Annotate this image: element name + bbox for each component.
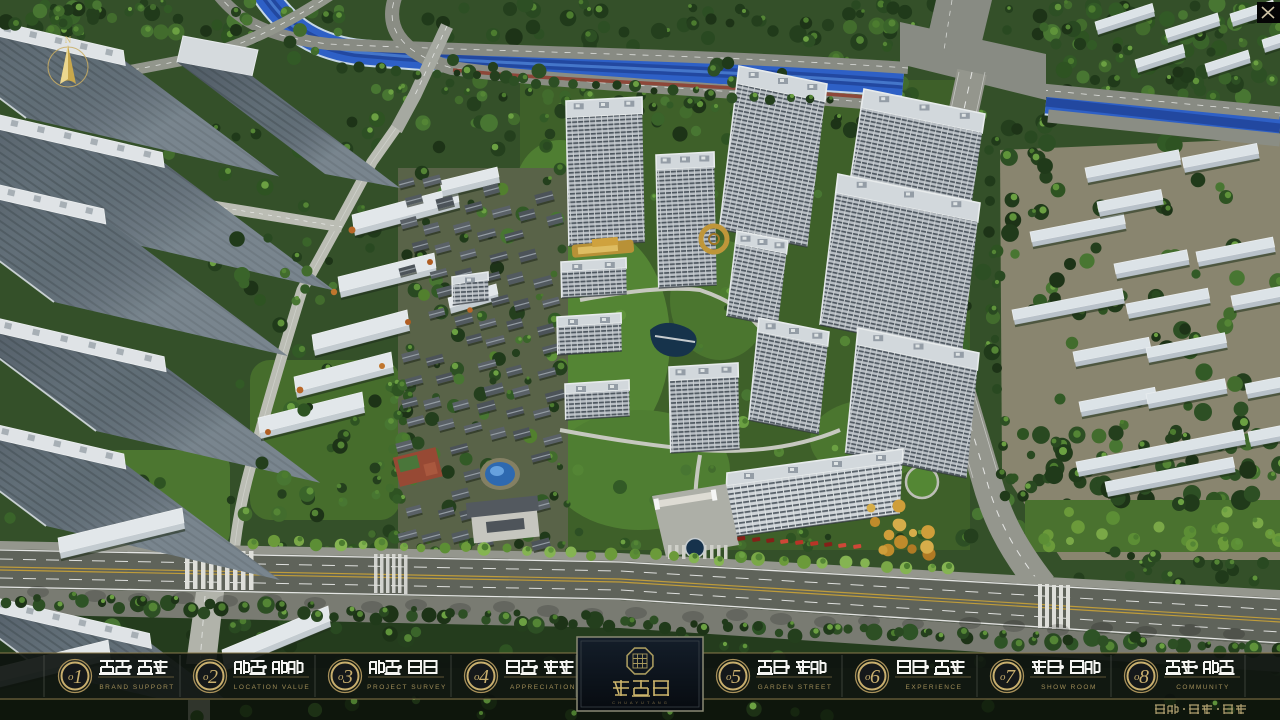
svg-text:8: 8 [1139,666,1149,688]
svg-text:7: 7 [1005,666,1016,688]
svg-text:GARDEN STREET: GARDEN STREET [758,684,833,691]
svg-text:EXPERIENCE: EXPERIENCE [906,684,963,691]
svg-text:2: 2 [208,666,218,688]
svg-text:APPRECIATION: APPRECIATION [510,684,576,691]
svg-text:C H U A Y U T A N G: C H U A Y U T A N G [612,700,668,705]
svg-text:6: 6 [870,666,880,688]
svg-text:3: 3 [342,666,353,688]
svg-text:PROJECT SURVEY: PROJECT SURVEY [367,684,447,691]
svg-text:LOCATION VALUE: LOCATION VALUE [234,684,310,691]
svg-text:5: 5 [731,666,741,688]
svg-text:4: 4 [479,666,489,688]
svg-text:1: 1 [73,666,83,688]
svg-text:SHOW ROOM: SHOW ROOM [1041,684,1097,691]
svg-text:COMMUNITY: COMMUNITY [1176,684,1230,691]
svg-text:BRAND SUPPORT: BRAND SUPPORT [99,684,174,691]
svg-text:N: N [65,35,72,45]
